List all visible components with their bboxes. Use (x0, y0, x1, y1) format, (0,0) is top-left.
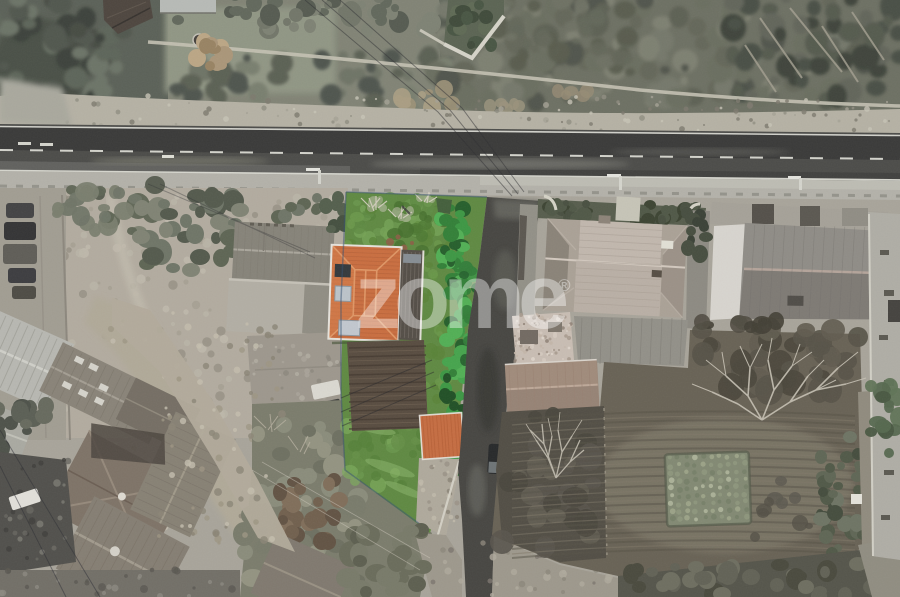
svg-text:zome: zome (355, 246, 567, 348)
svg-text:®: ® (558, 276, 571, 295)
